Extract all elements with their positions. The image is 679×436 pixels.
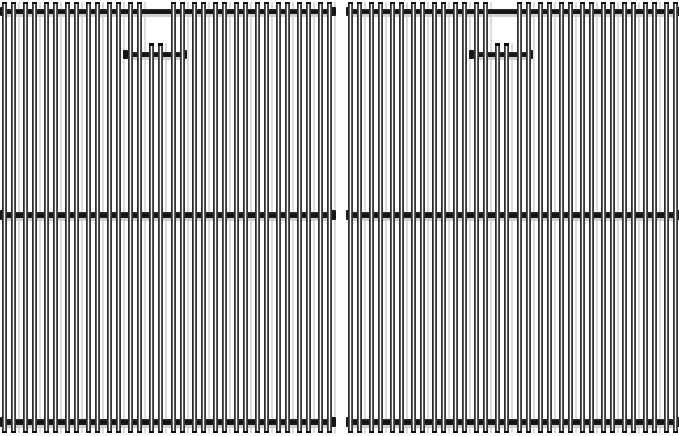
grate-rod — [390, 2, 395, 433]
grate-rod — [441, 2, 446, 433]
grill-grate-right — [346, 0, 679, 436]
grate-rod — [264, 2, 269, 433]
grate-rod — [580, 2, 585, 433]
product-photo-stage — [0, 0, 679, 436]
rod-pair-shadow — [511, 43, 513, 433]
grate-rod — [53, 2, 58, 433]
grate-rod — [462, 2, 467, 433]
grate-rod — [32, 2, 37, 433]
grate-rod — [65, 2, 70, 433]
grate-rod — [453, 2, 458, 433]
grate-rod — [474, 2, 479, 433]
grate-rod — [213, 2, 218, 433]
grate-rod-notched — [504, 43, 509, 433]
grate-rod — [86, 2, 91, 433]
grate-rod — [399, 2, 404, 433]
grate-rod — [137, 2, 142, 433]
grate-rod — [243, 2, 248, 433]
grate-rod — [547, 2, 552, 433]
grate-rod — [306, 2, 311, 433]
grate-rod — [559, 2, 564, 433]
grate-rod — [116, 2, 121, 433]
grate-rod — [483, 2, 488, 433]
grate-rod — [378, 2, 383, 433]
grate-rod — [589, 2, 594, 433]
grate-rod — [297, 2, 302, 433]
grate-rod — [664, 2, 669, 433]
grate-rod — [201, 2, 206, 433]
grate-rod — [128, 2, 133, 433]
grate-rod — [568, 2, 573, 433]
grate-rod-notched — [149, 43, 154, 433]
grate-rod — [171, 2, 176, 433]
grate-rod-notched — [495, 43, 500, 433]
grate-rod — [74, 2, 79, 433]
grate-rod — [357, 2, 362, 433]
grate-rod — [255, 2, 260, 433]
grate-rod — [23, 2, 28, 433]
grate-rod — [192, 2, 197, 433]
grill-grate-left — [0, 0, 336, 436]
grate-crossbar — [348, 212, 679, 218]
grate-rod — [369, 2, 374, 433]
grate-crossbar — [348, 419, 679, 425]
grate-rod — [432, 2, 437, 433]
bracket-end-cap — [469, 50, 474, 59]
grate-rod — [44, 2, 49, 433]
grate-rod — [180, 2, 185, 433]
grate-rod — [234, 2, 239, 433]
grate-rod — [420, 2, 425, 433]
grate-crossbar — [348, 9, 679, 14]
grate-rod — [222, 2, 227, 433]
grate-rod — [631, 2, 636, 433]
bracket-end-cap — [123, 50, 128, 59]
grate-rod — [517, 2, 522, 433]
grate-rod — [601, 2, 606, 433]
grate-rod — [673, 2, 678, 433]
grate-rod — [11, 2, 16, 433]
grate-rod — [285, 2, 290, 433]
grate-rod — [95, 2, 100, 433]
rod-pair-shadow — [165, 43, 167, 433]
grate-rod — [276, 2, 281, 433]
grate-rod — [107, 2, 112, 433]
grate-rod — [327, 2, 332, 433]
grate-rod — [610, 2, 615, 433]
grate-rod — [411, 2, 416, 433]
grate-rod — [348, 2, 353, 433]
grate-rod — [2, 2, 7, 433]
grate-rod — [622, 2, 627, 433]
grate-rod — [652, 2, 657, 433]
grate-rod-notched — [158, 43, 163, 433]
grate-rod — [318, 2, 323, 433]
grate-rod — [538, 2, 543, 433]
grate-rod — [643, 2, 648, 433]
grate-rod — [526, 2, 531, 433]
